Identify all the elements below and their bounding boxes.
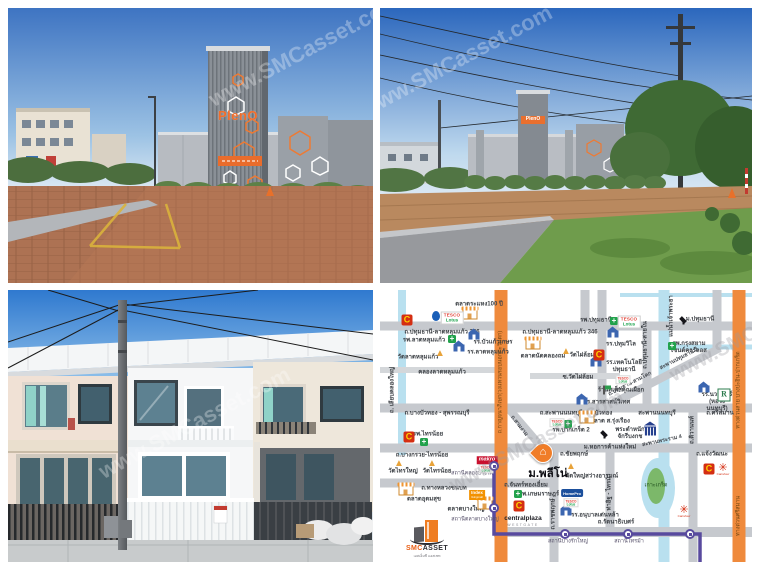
property-label-pleno: ม.พลีโน่ [528, 465, 567, 483]
school-icon [699, 386, 710, 393]
hospital-label-latlumkaeo: รพ.ลาดหลุมแก้ว [403, 337, 445, 344]
carrefour-logo: ✳Carrefour [678, 506, 691, 518]
tesco-lotus-logo: TESCOLotus [441, 312, 464, 325]
property-pin: ⌂ [533, 443, 553, 463]
tesco-lotus-mini-logo: TESCOLotus [564, 498, 579, 507]
mrt-station [685, 529, 695, 539]
road-label-bangbuathong-suphanburi: ถ.บางบัวทอง - สุพรรณบุรี [404, 410, 469, 417]
mrt-station [489, 503, 499, 513]
school-icon [608, 331, 619, 338]
tesco-lotus-mini-logo: TESCOLotus [550, 418, 565, 427]
school-icon [454, 345, 465, 352]
market-label-natkhlongthom: ตลาดนัดคลองถม [521, 353, 566, 360]
mrt-station [560, 529, 570, 539]
road-label-kanchanaphisek: ถ.กาญจนาภิเษก(วงแหวนรอบนอกตะวันตก) [498, 331, 505, 433]
university-label-pathumthani: ม.ปทุมธานี [686, 316, 714, 323]
school-label-technology-pathumthani: รร.เทคโนโลยี ปทุมธานี [606, 360, 642, 374]
carrefour-logo: ✳Carrefour [717, 464, 730, 476]
road-label-rattanathibet: ถ.รัตนาธิเบศร์ [598, 519, 634, 526]
temple-icon: ▲ [435, 349, 445, 359]
project-sign-text: PlenO [210, 108, 266, 123]
school-label-sarasas: รร.สารสาสน์วิเทศ [584, 399, 630, 406]
hospital-icon: + [668, 342, 676, 350]
bank-icon [644, 427, 656, 436]
temple-icon: ▲ [394, 459, 404, 469]
temple-icon: ▲ [561, 347, 571, 357]
road-label-saphan-nonthaburi-bangbuathong: ถ.สะพานนนทบุรี-บางบัวทอง [540, 410, 613, 417]
hospital-icon: + [564, 420, 572, 428]
map-canvas: SMCASSET เอสเอ็มซี แอสเซท www.SMCasset.c… [380, 290, 752, 562]
market-icon [463, 311, 478, 320]
school-icon [469, 333, 480, 340]
market-label-udomsuk: ตลาดอุดมสุข [407, 496, 441, 503]
school-icon [591, 360, 602, 367]
entrance-side-illustration [380, 8, 752, 283]
centralplaza-westgate-logo: centralplazaWESTGATE [504, 515, 542, 527]
road-label-ratchaphruek: ถ.ราชพฤกษ์ [550, 498, 557, 529]
hospital-icon: + [420, 438, 428, 446]
palace-label-chakribongkot: พระตำหนัก จักรีบงกช [615, 427, 644, 441]
road-label-chanthong-iam: ถ.จันทร์ทองเอี่ยม [504, 482, 548, 489]
island-label-kohkret: เกาะเกร็ด [645, 483, 668, 490]
market-icon [399, 487, 414, 496]
road-label-thangluang-chonnabot: ถ.ทางหลวงชนบท [421, 485, 466, 492]
photo-collage: PlenO www.SMCasset.com [0, 0, 760, 570]
project-sign-text-small: PlenO [519, 116, 547, 122]
index-logo: Indexlivingmall [469, 490, 485, 500]
entrance-front-illustration [8, 8, 373, 283]
graduation-cap-icon [679, 316, 688, 325]
mrt-station [623, 529, 633, 539]
central-c-logo: C [404, 432, 415, 443]
temple-icon: ▲ [427, 459, 437, 469]
smcasset-logo-text: SMCASSET [383, 545, 471, 553]
bridge-label-nonthaburi: สะพานนนทบุรี [638, 410, 676, 417]
canal-label-latlumkaeo: คลองลาดหลุมแก้ว [418, 369, 466, 376]
restaurant-icon [603, 386, 605, 395]
station-label-saima: สถานีไทรม้า [614, 539, 644, 546]
expressway-label-srisaman: ทางด่วนศรีสมาน [736, 496, 743, 536]
hospital-label-sainoi: รพ.ไทรน้อย [413, 431, 443, 438]
school-icon [577, 398, 588, 405]
road-label-liapkhlongyai: ถ. เลียบคลองใหญ่ [389, 367, 396, 413]
road-label-pathumthani-sainai: ถ.ปทุมธานี-สายใน [642, 321, 649, 369]
robinson-logo: R [718, 389, 731, 402]
smcasset-building-icon [410, 521, 444, 545]
mrt-station [489, 461, 499, 471]
school-label-pathumwilai: รร.ปทุมวิไล [606, 341, 636, 348]
school-label-denla: รร.อนุบาลเด่นหล้า [571, 512, 619, 519]
station-label-bangrakyai: สถานีบางรักใหญ่ [548, 539, 588, 546]
homepro-logo: HomePro [561, 489, 583, 497]
photo-entrance-front: PlenO www.SMCasset.com [8, 8, 373, 283]
location-map: SMCASSET เอสเอ็มซี แอสเซท www.SMCasset.c… [380, 290, 752, 562]
photo-entrance-side: PlenO www.SMCasset.com [380, 8, 752, 283]
temple-label-saiyai: วัดไทรใหญ่ [388, 468, 417, 475]
central-c-logo: C [402, 315, 413, 326]
market-icon [580, 415, 595, 424]
central-c-logo: C [514, 501, 525, 512]
smcasset-tagline: เอสเอ็มซี แอสเซท [383, 553, 471, 559]
road-label-tiwanon: ถ.ติวานนท์ [689, 416, 696, 444]
townhouse-illustration [8, 290, 373, 562]
central-c-logo: C [704, 464, 715, 475]
river-label-chaophraya: แม่น้ำเจ้าพระยา [668, 295, 675, 337]
market-label-so-rungrueang: ตลาด ส.รุ่งเรือง [590, 418, 630, 425]
tesco-lotus-mini-logo: TESCOLotus [616, 375, 631, 384]
hospital-icon: + [514, 490, 522, 498]
university-label-utcc: ม.หอการค้าแห่งใหม่ [584, 444, 636, 451]
central-c-logo: C [594, 350, 605, 361]
road-label-chaengwattana: ถ.แจ้งวัฒนะ [696, 451, 728, 458]
tesco-lotus-logo: TESCOLotus [618, 316, 641, 329]
graduation-cap-icon [600, 430, 609, 439]
soi-label-watphailom: ซ.วัดไผ่ล้อม [563, 374, 594, 381]
road-label-chaiyapruek: ถ.ชัยพฤกษ์ [560, 451, 588, 458]
smcasset-logo: SMCASSET เอสเอ็มซี แอสเซท [383, 521, 471, 559]
temple-label-latlumkaeo: วัดลาดหลุมแก้ว [398, 354, 439, 361]
expressway-label-bangpain-pakkret: ทางด่วนสาย บางปะอิน-ปากเกร็ด [736, 351, 743, 428]
gas-station-icon [432, 311, 440, 321]
market-icon [526, 341, 541, 350]
hospital-label-pathumthani: รพ.ปทุมธานี [580, 317, 612, 324]
hospital-label-pakkret2: รพ.ปากเกร็ด 2 [552, 427, 589, 434]
school-label-buakaewkesorn: รร.บัวแก้วเกษร [473, 339, 512, 346]
road-label-thait-saima: ท่าอิฐ - ไทรม้า [606, 473, 613, 510]
photo-townhouse: www.SMCasset.com [8, 290, 373, 562]
school-icon [561, 509, 572, 516]
temple-label-sainoi: วัดไทรน้อย [423, 468, 452, 475]
